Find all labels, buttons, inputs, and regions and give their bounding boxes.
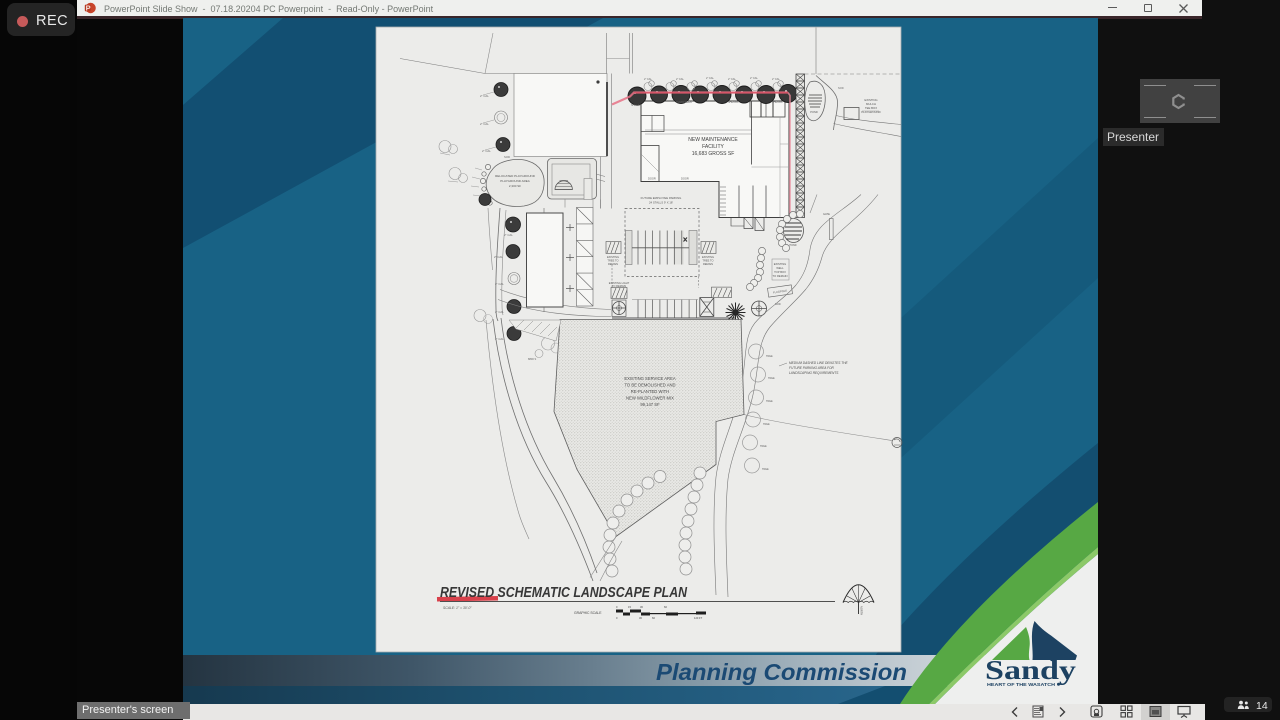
svg-text:TREE: TREE bbox=[760, 445, 767, 448]
svg-text:FACILITY: FACILITY bbox=[702, 144, 724, 150]
svg-text:TREE: TREE bbox=[768, 377, 775, 380]
svg-text:TREE: TREE bbox=[763, 423, 770, 426]
svg-text:EXISTING SERVICE AREA: EXISTING SERVICE AREA bbox=[624, 376, 676, 381]
svg-text:FUTURE PARKING AREA FOR: FUTURE PARKING AREA FOR bbox=[789, 366, 835, 370]
svg-text:HEART OF THE WASATCH: HEART OF THE WASATCH bbox=[987, 682, 1055, 687]
svg-text:DOOR: DOOR bbox=[648, 177, 656, 181]
svg-text:REVISED SCHEMATIC LANDSCAPE PL: REVISED SCHEMATIC LANDSCAPE PLAN bbox=[440, 584, 688, 601]
svg-text:TREE: TREE bbox=[766, 355, 773, 358]
svg-text:Planning Commission: Planning Commission bbox=[656, 659, 907, 685]
svg-text:SHRUBS: SHRUBS bbox=[772, 101, 783, 104]
svg-text:TREE: TREE bbox=[762, 468, 769, 471]
svg-text:FUTURE EMPLOYEE PARKING: FUTURE EMPLOYEE PARKING bbox=[641, 196, 682, 200]
svg-text:REMAIN: REMAIN bbox=[703, 262, 713, 266]
svg-text:120 FT: 120 FT bbox=[694, 616, 703, 620]
svg-text:DOOR: DOOR bbox=[681, 177, 689, 181]
svg-text:NEW WILDFLOWER MIX: NEW WILDFLOWER MIX bbox=[626, 396, 674, 401]
svg-text:2,300 SF: 2,300 SF bbox=[509, 184, 521, 188]
svg-text:2" CAL: 2" CAL bbox=[676, 78, 684, 81]
svg-text:EXISTING: EXISTING bbox=[774, 262, 787, 266]
svg-text:Sandy: Sandy bbox=[985, 655, 1077, 685]
svg-text:24 STALLS 9' X 18': 24 STALLS 9' X 18' bbox=[649, 201, 673, 205]
svg-text:RE-PLANTED WITH: RE-PLANTED WITH bbox=[631, 389, 669, 394]
svg-text:16,683 GROSS SF: 16,683 GROSS SF bbox=[692, 151, 735, 157]
svg-text:WELL: WELL bbox=[776, 266, 784, 270]
svg-text:2" CAL: 2" CAL bbox=[644, 78, 652, 81]
svg-text:SCALE: 1" = 30'-0": SCALE: 1" = 30'-0" bbox=[443, 606, 472, 610]
svg-text:99,147 SF: 99,147 SF bbox=[640, 402, 660, 407]
svg-text:2" CAL: 2" CAL bbox=[495, 310, 504, 314]
svg-text:TREE TO: TREE TO bbox=[702, 259, 713, 263]
svg-text:2" CAL: 2" CAL bbox=[772, 78, 780, 81]
svg-text:PLAYGROUND: PLAYGROUND bbox=[861, 110, 880, 114]
svg-text:SOD: SOD bbox=[504, 155, 510, 159]
svg-text:TO REMAIN: TO REMAIN bbox=[612, 284, 626, 288]
svg-text:GRAPHIC SCALE: GRAPHIC SCALE bbox=[574, 611, 602, 615]
svg-text:2" CAL: 2" CAL bbox=[728, 78, 736, 81]
svg-text:RELOCATED PLAYGROUND: RELOCATED PLAYGROUND bbox=[495, 174, 536, 178]
svg-text:2" CAL: 2" CAL bbox=[750, 77, 758, 80]
svg-text:TREE TO: TREE TO bbox=[607, 259, 618, 263]
svg-text:MEDIUM DASHED LINE DENOTES THE: MEDIUM DASHED LINE DENOTES THE bbox=[789, 361, 848, 365]
svg-text:POND: POND bbox=[790, 244, 797, 247]
svg-text:2" CAL: 2" CAL bbox=[494, 255, 503, 259]
svg-text:TREE: TREE bbox=[766, 400, 773, 403]
svg-text:P: P bbox=[86, 4, 91, 13]
svg-text:TO REMAIN: TO REMAIN bbox=[773, 274, 788, 278]
svg-text:EXISTING: EXISTING bbox=[607, 255, 619, 259]
svg-text:TO BE DEMOLISHED AND: TO BE DEMOLISHED AND bbox=[624, 383, 675, 388]
svg-text:SHRUBS: SHRUBS bbox=[631, 104, 642, 107]
svg-text:NEW MAINTENANCE: NEW MAINTENANCE bbox=[688, 137, 738, 143]
svg-text:EXISTING: EXISTING bbox=[702, 255, 714, 259]
svg-text:LANDSCAPING REQUIREMENTS: LANDSCAPING REQUIREMENTS bbox=[789, 371, 839, 375]
svg-text:2" CAL: 2" CAL bbox=[495, 282, 504, 286]
svg-text:2" CAL: 2" CAL bbox=[504, 233, 513, 237]
svg-text:EVERGREEN: EVERGREEN bbox=[676, 101, 692, 104]
svg-text:SHRUBS: SHRUBS bbox=[728, 101, 739, 104]
svg-text:NORTH: NORTH bbox=[860, 606, 864, 615]
svg-text:2" CAL: 2" CAL bbox=[706, 77, 714, 80]
svg-text:TOP BOX: TOP BOX bbox=[774, 270, 786, 274]
svg-text:8800 S: 8800 S bbox=[528, 357, 536, 361]
svg-text:PLAYGROUND AREA: PLAYGROUND AREA bbox=[500, 179, 530, 183]
svg-text:GATE: GATE bbox=[823, 212, 830, 216]
svg-text:POND: POND bbox=[810, 110, 818, 114]
svg-text:REMAIN: REMAIN bbox=[608, 262, 618, 266]
svg-text:SOD: SOD bbox=[838, 86, 844, 90]
